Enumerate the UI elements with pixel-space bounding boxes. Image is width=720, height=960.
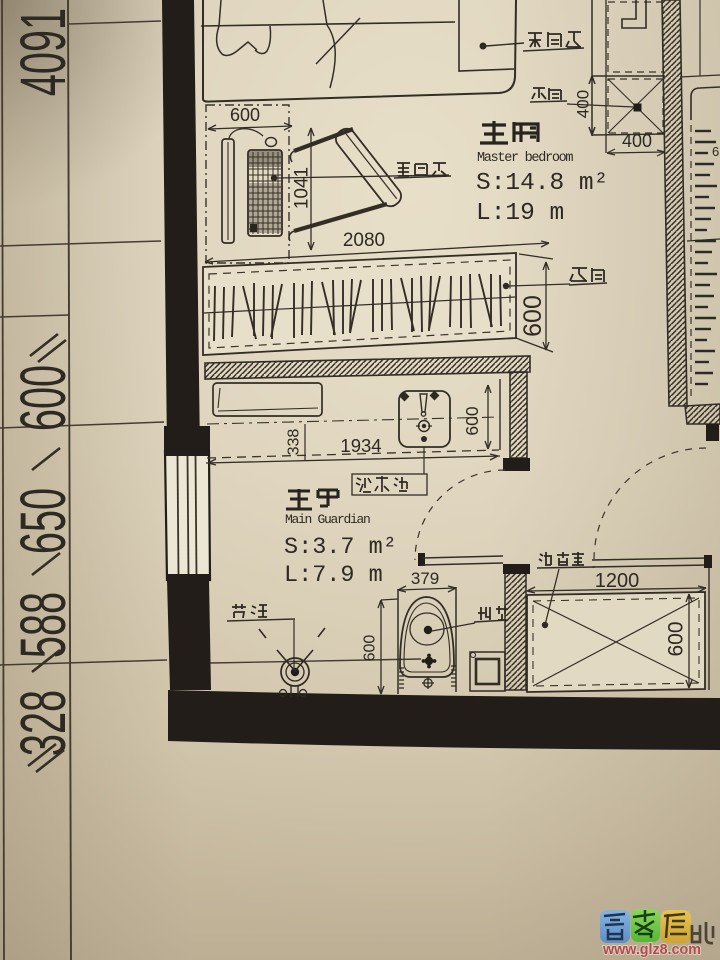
svg-text:400: 400 [574, 90, 593, 118]
svg-text:600: 600 [462, 406, 482, 435]
svg-text:www.glz8.com: www.glz8.com [602, 942, 701, 958]
svg-text:600: 600 [665, 621, 688, 656]
svg-text:Master bedroom: Master bedroom [477, 151, 573, 166]
svg-text:4091: 4091 [9, 8, 80, 96]
svg-text:600: 600 [519, 295, 547, 337]
svg-text:338: 338 [286, 429, 303, 456]
svg-text:S:3.7 m²: S:3.7 m² [284, 534, 397, 561]
svg-text:328: 328 [9, 690, 80, 756]
svg-text:600: 600 [362, 635, 379, 662]
svg-text:2080: 2080 [343, 230, 385, 251]
svg-text:379: 379 [411, 569, 439, 588]
svg-text:S:14.8 m²: S:14.8 m² [476, 170, 608, 197]
svg-text:L:7.9 m: L:7.9 m [284, 562, 383, 589]
svg-text:1041: 1041 [292, 167, 313, 209]
svg-text:588: 588 [9, 592, 80, 658]
svg-text:600: 600 [9, 365, 80, 431]
svg-text:Main Guardian: Main Guardian [285, 512, 370, 527]
svg-text:1934: 1934 [340, 435, 381, 456]
svg-text:650: 650 [9, 488, 80, 554]
svg-text:400: 400 [622, 131, 652, 151]
svg-text:6: 6 [712, 144, 719, 159]
svg-text:L:19 m: L:19 m [476, 200, 564, 227]
svg-text:600: 600 [230, 105, 260, 125]
